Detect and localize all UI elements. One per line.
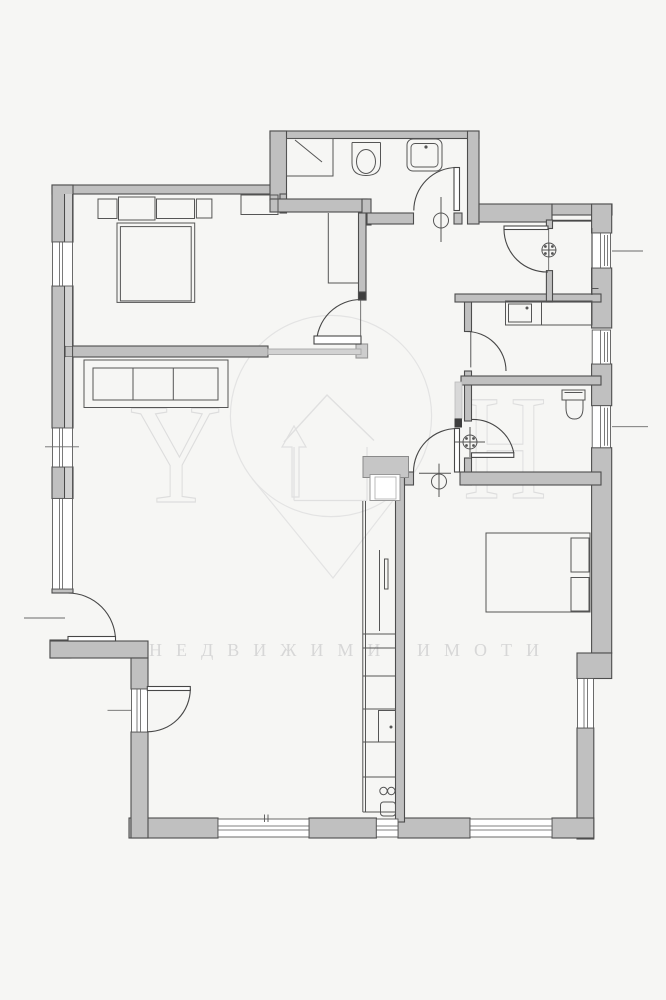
svg-text:Y: Y <box>130 375 222 533</box>
svg-text:НЕДВИЖИМИ: НЕДВИЖИМИ <box>149 640 394 660</box>
svg-text:H: H <box>463 365 547 531</box>
svg-text:ИМОТИ: ИМОТИ <box>417 640 553 660</box>
